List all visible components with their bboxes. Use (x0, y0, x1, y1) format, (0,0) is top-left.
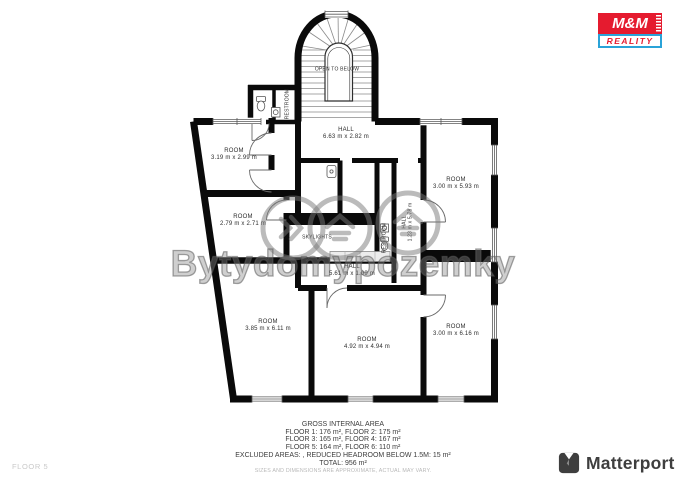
window-right-3 (491, 305, 499, 339)
room-label: ROOM3.00 m x 6.16 m (433, 324, 479, 338)
room-label: ROOM2.79 m x 2.71 m (220, 214, 266, 228)
gia-title: GROSS INTERNAL AREA (0, 421, 686, 429)
door-arc (424, 295, 446, 317)
toilet-icon (257, 97, 266, 112)
hall-vertical-label: HALL1.23 m x 5.78 m (403, 203, 414, 242)
window-bottom-3 (438, 395, 464, 403)
gross-internal-area-block: GROSS INTERNAL AREA FLOOR 1: 176 m², FLO… (0, 421, 686, 476)
gia-line: FLOOR 5: 164 m², FLOOR 6: 110 m² (0, 444, 686, 452)
door-arc (252, 124, 269, 141)
mm-logo-text: M&M (612, 15, 648, 32)
window-bottom-2 (348, 395, 373, 403)
skylights-label: SKYLIGHTS (302, 235, 332, 241)
open-to-below-label: OPEN TO BELOW (315, 67, 359, 73)
door-arc (327, 288, 347, 308)
floorplan-page: OPEN TO BELOW RESTROOM HALL6.63 m x 2.82… (0, 0, 686, 484)
window-bottom-1 (252, 395, 282, 403)
window-top-right (420, 118, 462, 126)
mm-logo-top: M&M (598, 13, 662, 34)
mm-reality-logo: M&M REALITY (598, 13, 662, 48)
window-right-1 (491, 145, 499, 175)
door-arc (424, 200, 446, 222)
room-label: ROOM3.00 m x 5.93 m (433, 177, 479, 191)
sink-icon (272, 108, 281, 118)
gia-line: EXCLUDED AREAS: , REDUCED HEADROOM BELOW… (0, 452, 686, 460)
disclaimer: SIZES AND DIMENSIONS ARE APPROXIMATE, AC… (0, 468, 686, 476)
hall-label: HALL6.63 m x 2.82 m (323, 127, 369, 141)
door-arc (250, 170, 272, 192)
gia-line: FLOOR 1: 176 m², FLOOR 2: 175 m² (0, 429, 686, 437)
gia-line: TOTAL: 956 m² (0, 460, 686, 468)
room-label: ROOM3.85 m x 6.11 m (245, 319, 291, 333)
mm-logo-reality: REALITY (598, 34, 662, 48)
mm-logo-side-strip (656, 15, 661, 32)
room-label: ROOM3.19 m x 2.99 m (211, 148, 257, 162)
water-heater-icon (327, 166, 336, 178)
restroom-label: RESTROOM (285, 89, 291, 120)
gia-line: FLOOR 3: 165 m², FLOOR 4: 167 m² (0, 436, 686, 444)
watermark-text: Bytydomypozemky (171, 243, 516, 285)
window-arch-top (325, 10, 348, 18)
room-label: ROOM4.92 m x 4.94 m (344, 337, 390, 351)
window-top-left (213, 118, 261, 126)
